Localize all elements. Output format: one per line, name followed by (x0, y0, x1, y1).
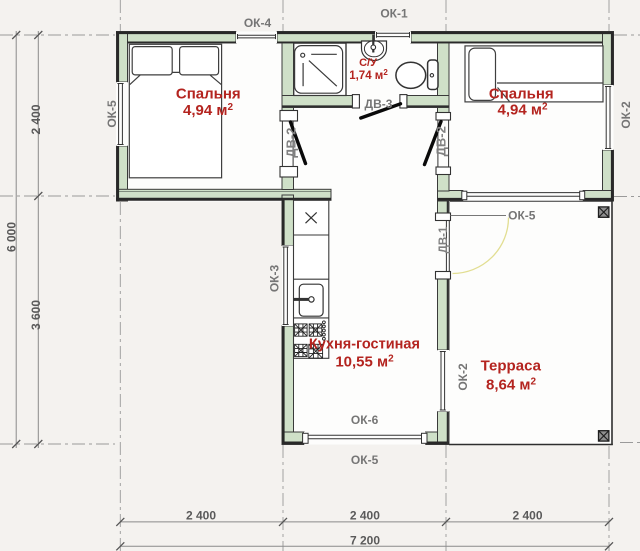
svg-text:8,64 м2: 8,64 м2 (486, 376, 536, 393)
svg-text:Кухня-гостиная: Кухня-гостиная (309, 336, 420, 352)
svg-text:ОК-2: ОК-2 (456, 363, 470, 391)
svg-text:Терраса: Терраса (481, 357, 542, 374)
svg-text:ДВ-2: ДВ-2 (283, 128, 298, 158)
svg-text:ОК-5: ОК-5 (105, 100, 119, 128)
svg-text:ОК-2: ОК-2 (619, 101, 633, 129)
svg-text:2 400: 2 400 (512, 508, 542, 522)
svg-text:ДВ-3: ДВ-3 (365, 97, 393, 111)
svg-text:10,55 м2: 10,55 м2 (335, 354, 394, 371)
svg-text:4,94 м2: 4,94 м2 (183, 102, 233, 119)
svg-text:2 400: 2 400 (29, 104, 43, 134)
svg-text:ОК-4: ОК-4 (244, 16, 272, 30)
svg-text:С/У: С/У (359, 57, 377, 69)
svg-text:7 200: 7 200 (350, 533, 380, 547)
svg-text:ДВ-2: ДВ-2 (434, 126, 449, 156)
svg-text:ОК-5: ОК-5 (508, 208, 536, 222)
svg-text:Спальня: Спальня (489, 85, 554, 102)
svg-text:2 400: 2 400 (350, 508, 380, 522)
svg-text:ОК-5: ОК-5 (351, 453, 379, 467)
svg-text:ОК-6: ОК-6 (351, 413, 379, 427)
svg-text:ДВ-1: ДВ-1 (438, 226, 450, 253)
svg-text:3 600: 3 600 (29, 300, 43, 330)
svg-text:ОК-3: ОК-3 (268, 265, 282, 293)
svg-text:4,94 м2: 4,94 м2 (497, 102, 547, 119)
svg-text:6 000: 6 000 (5, 222, 19, 252)
svg-text:1,74 м2: 1,74 м2 (349, 68, 388, 82)
svg-text:Спальня: Спальня (176, 85, 241, 102)
svg-text:ОК-1: ОК-1 (380, 7, 408, 21)
svg-text:2 400: 2 400 (186, 508, 216, 522)
